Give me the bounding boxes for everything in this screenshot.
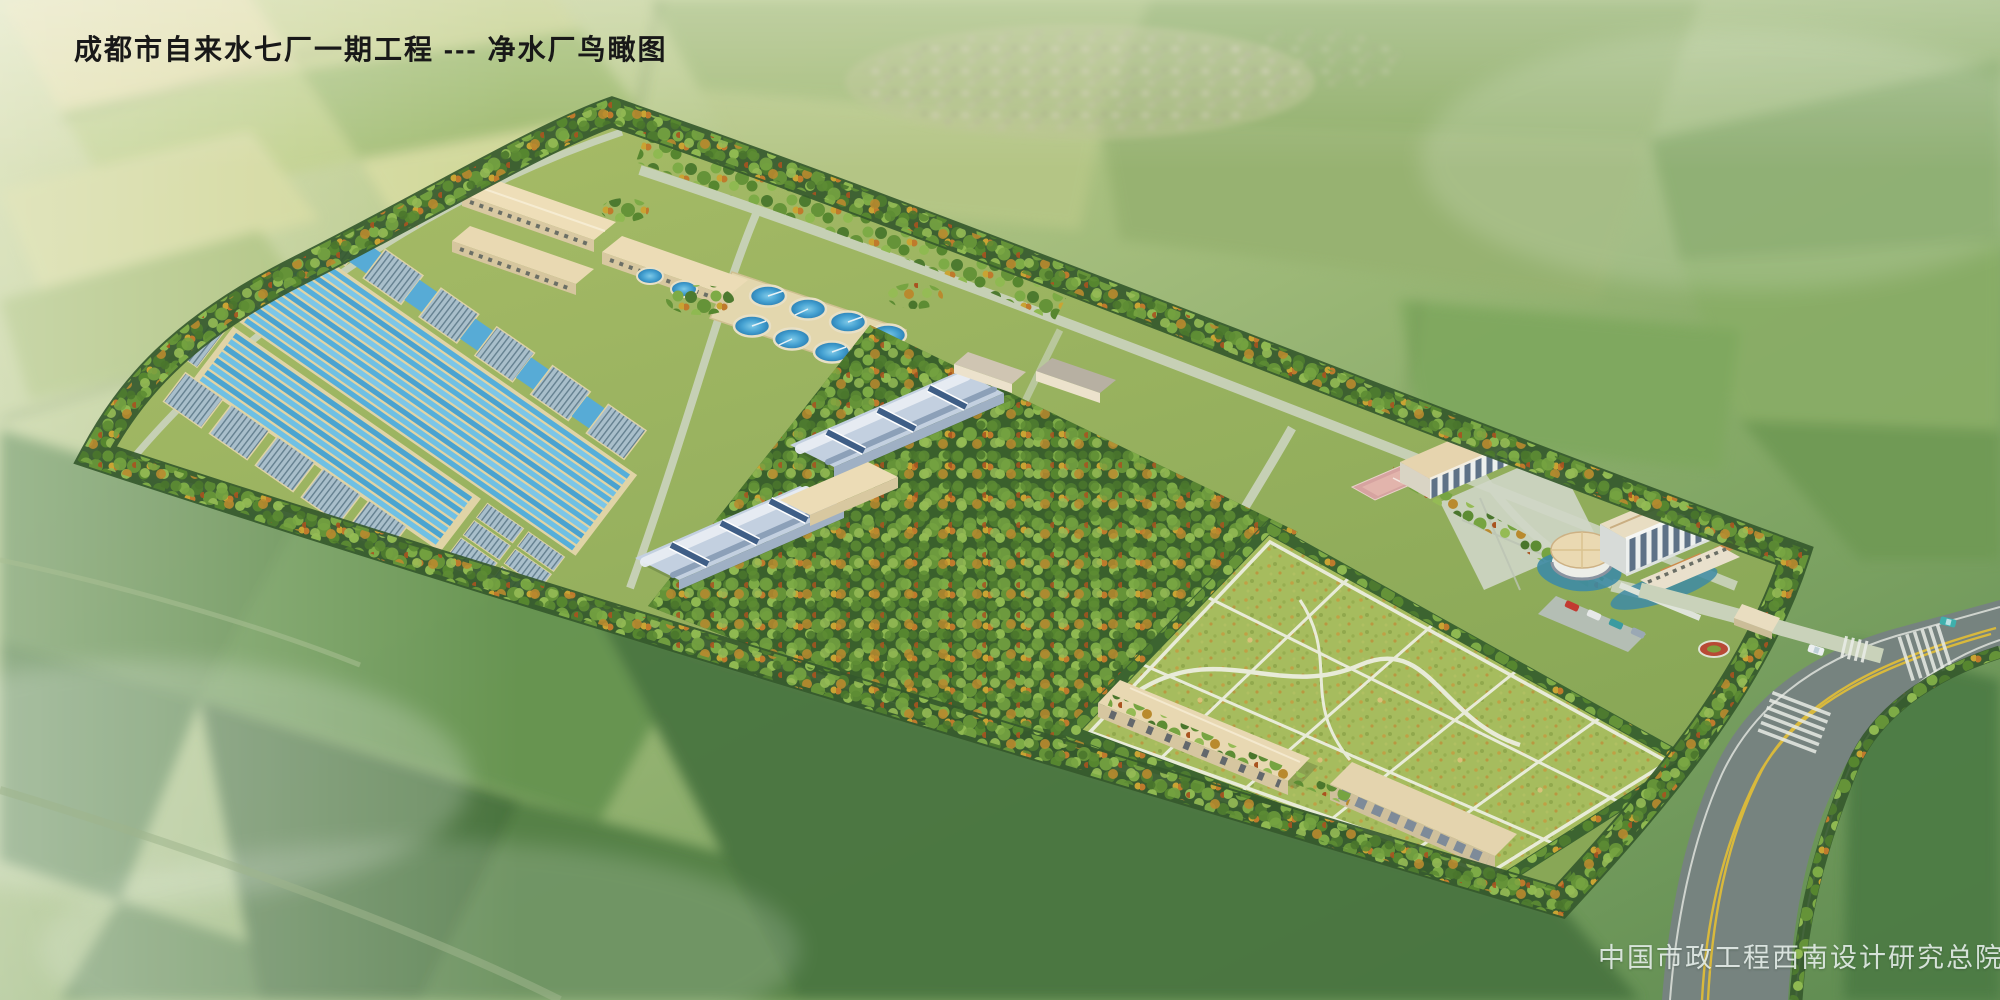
studio-credit: 中国市政工程西南设计研究总院	[1598, 936, 2000, 975]
rendering-canvas	[0, 0, 2000, 1000]
page-title: 成都市自来水七厂一期工程 --- 净水厂鸟瞰图	[74, 28, 668, 68]
rendering-stage: 成都市自来水七厂一期工程 --- 净水厂鸟瞰图 中国市政工程西南设计研究总院	[0, 0, 2000, 1000]
small-round-tank	[637, 268, 663, 284]
